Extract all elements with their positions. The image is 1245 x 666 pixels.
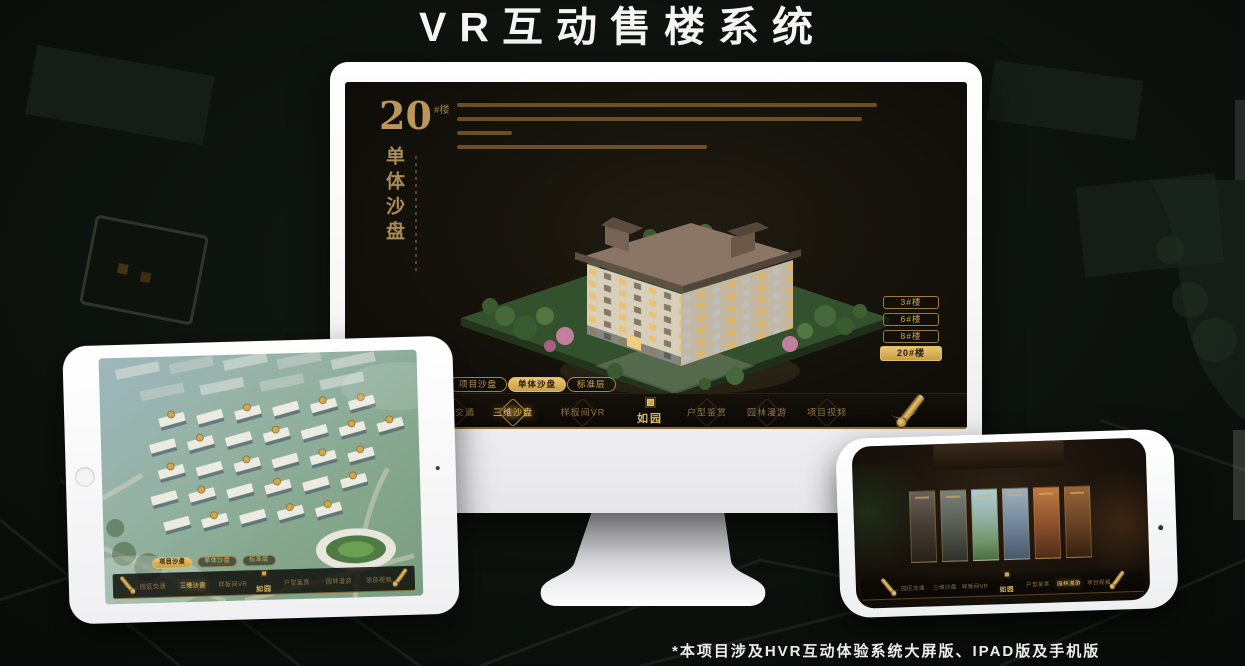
nav-item-model-room-vr[interactable]: 样板间VR (561, 406, 606, 419)
nav-item-floorplan[interactable]: 户型鉴赏 (1026, 580, 1050, 589)
nav-item-garden-tour[interactable]: 园林漫游 (326, 576, 352, 586)
interior-backdrop (934, 440, 1064, 470)
camera-dot (1158, 525, 1163, 530)
scroll-icon[interactable] (118, 576, 137, 596)
scene-card-6[interactable] (1064, 485, 1092, 558)
scene-card-3[interactable] (971, 488, 999, 561)
ipad-device: 项目沙盘 单体沙盘 标准层 园区交通 三维沙盘 样板间VR 如园 户型鉴赏 园林… (62, 336, 460, 625)
scroll-icon[interactable] (390, 568, 409, 588)
scroll-icon[interactable] (893, 394, 927, 429)
floor-button-8[interactable]: 8#楼 (883, 330, 939, 343)
tab-single-sandbox[interactable]: 单体沙盘 (197, 556, 237, 568)
nav-item-garden-tour[interactable]: 园林漫游 (747, 406, 787, 419)
home-button[interactable] (75, 467, 96, 488)
block-number: 20 (379, 93, 432, 138)
scene-card-4[interactable] (1002, 487, 1030, 560)
tab-single-sandbox[interactable]: 单体沙盘 (508, 377, 566, 392)
nav-item-park-traffic[interactable]: 园区交通 (140, 581, 166, 591)
floor-button-3[interactable]: 3#楼 (883, 296, 939, 309)
brand-logo-text: 如园 (999, 585, 1014, 593)
brand-logo-text: 如园 (637, 412, 663, 425)
brand-logo: 如园 (999, 571, 1015, 596)
tab-project-sandbox[interactable]: 项目沙盘 (449, 377, 507, 392)
nav-item-floorplan[interactable]: 户型鉴赏 (687, 406, 727, 419)
ipad-screen: 项目沙盘 单体沙盘 标准层 园区交通 三维沙盘 样板间VR 如园 户型鉴赏 园林… (99, 350, 424, 605)
nav-item-3d-sandbox[interactable]: 三维沙盘 (493, 406, 533, 419)
nav-item-model-room-vr[interactable]: 样板间VR (962, 582, 988, 591)
block-number-unit: #楼 (434, 101, 450, 116)
phone-screen: 园区交通 三维沙盘 样板间VR 如园 户型鉴赏 园林漫游 项目视频 (852, 438, 1151, 609)
vertical-caption-decoration (415, 156, 417, 274)
tab-standard-floor[interactable]: 标准层 (242, 555, 276, 567)
nav-item-3d-sandbox[interactable]: 三维沙盘 (933, 583, 957, 592)
page-title: VR互动售楼系统 (0, 0, 1245, 54)
brand-logo-text: 如园 (256, 584, 272, 593)
nav-item-garden-tour[interactable]: 园林漫游 (1057, 579, 1081, 588)
nav-item-3d-sandbox[interactable]: 三维沙盘 (180, 580, 206, 590)
nav-item-model-room-vr[interactable]: 样板间VR (218, 579, 247, 589)
scene-card-1[interactable] (909, 490, 937, 563)
seal-icon (645, 397, 656, 408)
phone-device: 园区交通 三维沙盘 样板间VR 如园 户型鉴赏 园林漫游 项目视频 (835, 429, 1178, 619)
block-title: 20#楼 (379, 96, 449, 136)
brand-logo: 如园 (637, 397, 663, 427)
seal-icon (260, 570, 267, 577)
stage: VR互动售楼系统 20#楼 单体沙盘 (0, 0, 1245, 666)
scroll-icon[interactable] (879, 578, 898, 598)
camera-dot (436, 466, 440, 470)
nav-item-park-traffic[interactable]: 园区交通 (901, 584, 925, 593)
scene-card-2[interactable] (940, 489, 968, 562)
nav-item-project-video[interactable]: 项目视频 (807, 406, 847, 419)
building-3d-render[interactable] (445, 166, 905, 408)
floor-button-20[interactable]: 20#楼 (880, 346, 942, 361)
block-subtitle: 单体沙盘 (381, 146, 408, 246)
floor-button-6[interactable]: 6#楼 (883, 313, 939, 326)
brand-logo: 如园 (256, 570, 273, 596)
seal-icon (1004, 571, 1010, 577)
scroll-icon[interactable] (1107, 570, 1126, 590)
footnote: *本项目涉及HVR互动体验系统大屏版、IPAD版及手机版 (672, 640, 1100, 661)
monitor-stand (528, 511, 778, 609)
nav-item-floorplan[interactable]: 户型鉴赏 (284, 577, 310, 587)
tab-project-sandbox[interactable]: 项目沙盘 (152, 557, 192, 569)
scene-card-5[interactable] (1033, 486, 1061, 559)
nav-item-project-video[interactable]: 项目视频 (366, 575, 392, 585)
tab-standard-floor[interactable]: 标准层 (567, 377, 616, 392)
